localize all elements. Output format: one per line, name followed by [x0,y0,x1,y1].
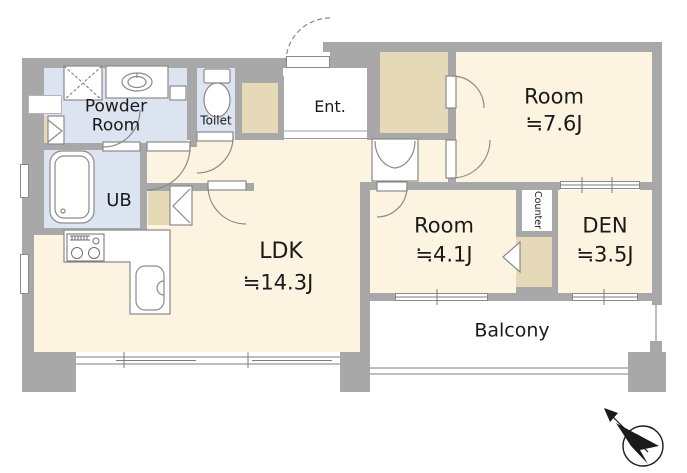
room-7-6-area: ≒7.6J [525,112,582,135]
toilet-label: Toilet [200,114,231,127]
washing-machine-space-icon [64,66,102,100]
powder-room-door [147,142,190,190]
room-4-1-area: ≒4.1J [415,243,472,266]
north-arrow-icon [604,408,663,466]
kitchen-stove-icon [67,234,104,261]
ub-label: UB [106,191,132,211]
window-ticks [395,177,640,305]
kitchen-sink-icon [136,266,164,310]
ldk-door [208,181,246,224]
room-7-6-name: Room [524,85,584,108]
room-4-1-door [377,182,407,217]
wash-basin-icon [106,66,168,98]
den-name: DEN [582,214,627,237]
entrance-label: Ent. [314,98,346,116]
ldk-name: LDK [259,240,303,264]
room-7-6-door-upper [446,76,484,108]
room-4-1-name: Room [414,214,474,237]
counter-label: Counter [532,191,542,229]
den-area: ≒3.5J [576,243,633,266]
floorplan: Powder Room Toilet UB Ent. Room ≒7.6J Ro… [0,0,687,473]
hall-closet-doors [372,139,418,181]
ldk-folding-door [170,186,192,225]
entrance-door [286,18,330,62]
powder-room-label: Powder Room [68,97,164,134]
balcony-label: Balcony [474,321,549,342]
bathtub-icon [50,151,94,223]
ldk-area: ≒14.3J [243,271,314,294]
cabinet-folding-door [48,116,64,144]
closet-folding-door [503,242,520,272]
window-ldk-south [76,352,340,368]
toilet-door [197,132,233,173]
room-7-6-door-lower [446,140,490,178]
storage-box [170,86,186,100]
toilet-bowl-icon [204,69,230,117]
